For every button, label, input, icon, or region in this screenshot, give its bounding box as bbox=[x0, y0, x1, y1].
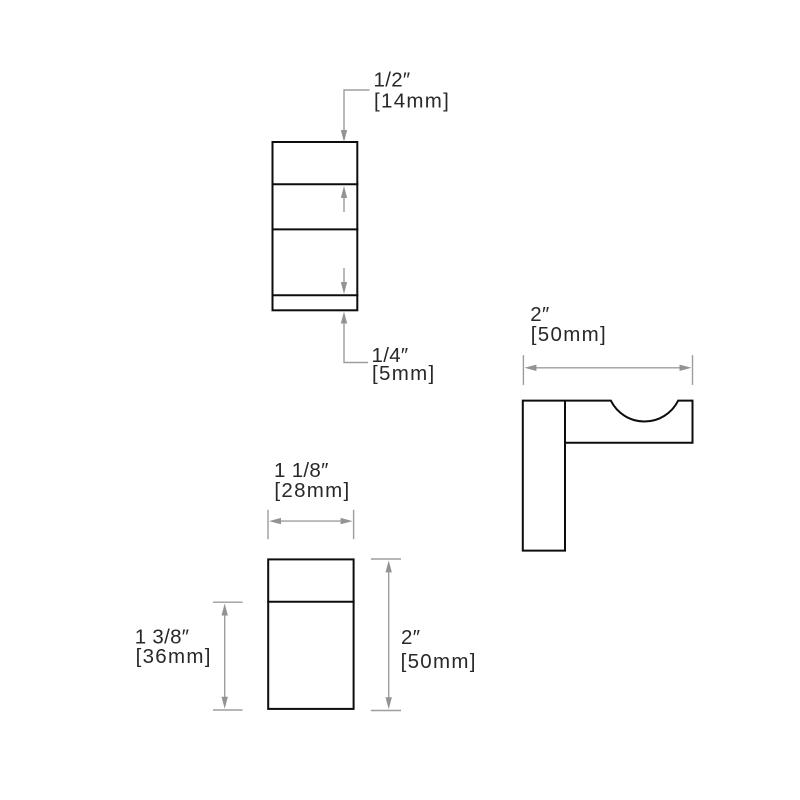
svg-text:2″: 2″ bbox=[401, 626, 420, 649]
svg-text:1/2″: 1/2″ bbox=[374, 69, 411, 92]
svg-text:[28mm]: [28mm] bbox=[274, 479, 350, 502]
svg-text:[50mm]: [50mm] bbox=[401, 650, 477, 673]
svg-text:[14mm]: [14mm] bbox=[374, 90, 450, 113]
svg-text:[5mm]: [5mm] bbox=[372, 362, 435, 385]
svg-text:[50mm]: [50mm] bbox=[531, 323, 607, 346]
svg-text:[36mm]: [36mm] bbox=[136, 645, 212, 668]
